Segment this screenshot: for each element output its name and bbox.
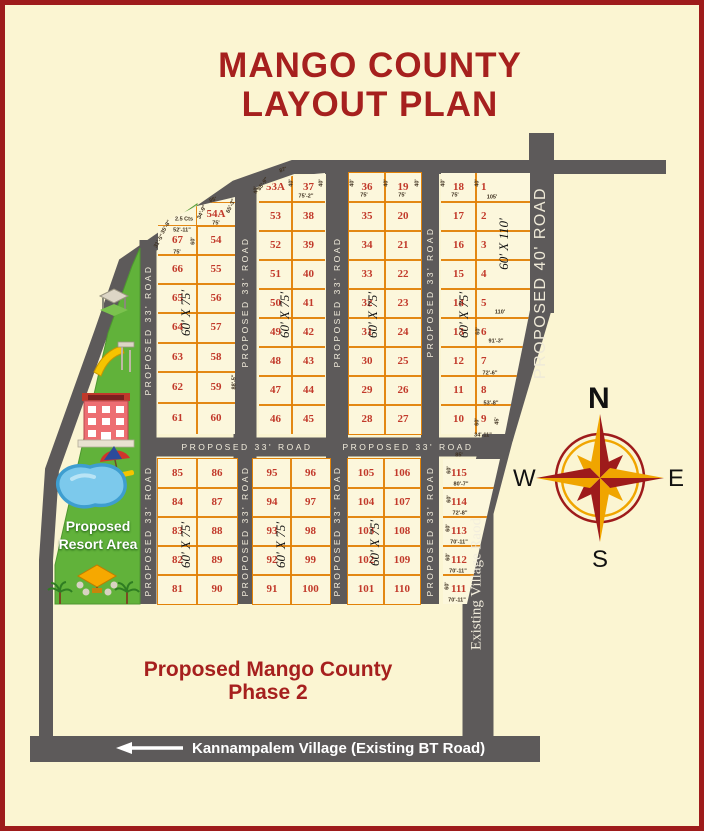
compass-rose-icon [536,414,664,542]
phase2-label: Proposed Mango County Phase 2 [118,658,418,704]
plan-title-line1: MANGO COUNTY [0,46,704,85]
compass-west-label: W [513,465,536,493]
swimming-pool [58,465,125,507]
phase2-line2: Phase 2 [118,681,418,704]
phase2-line1: Proposed Mango County [118,658,418,681]
layout-plan-canvas: MANGO COUNTY LAYOUT PLAN [0,0,704,831]
compass-north-label: N [588,382,610,416]
resort-building-icon [78,393,134,447]
compass-south-label: S [592,546,608,574]
existing-village-road [478,432,499,752]
plan-title-line2: LAYOUT PLAN [0,85,704,124]
plan-title: MANGO COUNTY LAYOUT PLAN [0,46,704,124]
resort-area-label-line1: Proposed [28,518,168,535]
bottom-road-label: Kannampalem Village (Existing BT Road) [192,740,485,757]
plot-2-5-cts [167,204,197,225]
compass-east-label: E [668,465,684,493]
resort-area-label-line2: Resort Area [28,536,168,553]
road-40ft-slant [500,300,541,438]
road-40ft-top [529,133,554,313]
